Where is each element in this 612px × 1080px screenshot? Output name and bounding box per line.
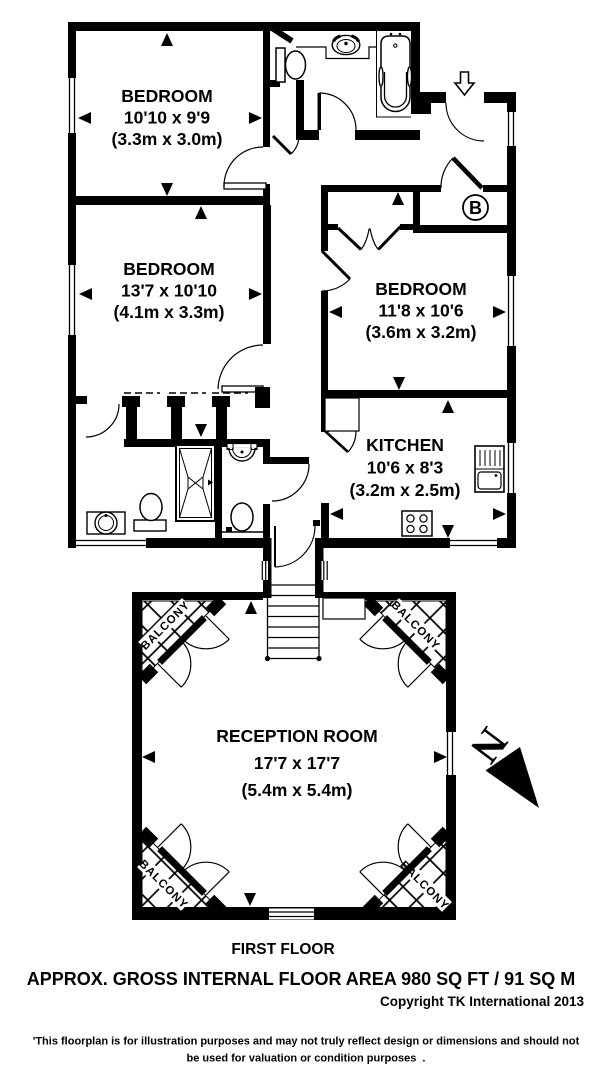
svg-text:17'7 x 17'7: 17'7 x 17'7 (254, 753, 340, 773)
svg-text:'This floorplan is for illustr: 'This floorplan is for illustration purp… (33, 1036, 580, 1048)
svg-text:11'8 x 10'6: 11'8 x 10'6 (378, 301, 463, 321)
svg-text:10'10 x 9'9: 10'10 x 9'9 (124, 108, 210, 128)
svg-text:APPROX. GROSS INTERNAL FLOOR A: APPROX. GROSS INTERNAL FLOOR AREA 980 SQ… (27, 969, 575, 989)
svg-text:FIRST FLOOR: FIRST FLOOR (231, 941, 334, 958)
svg-text:(3.6m x 3.2m): (3.6m x 3.2m) (366, 322, 477, 342)
svg-text:BEDROOM: BEDROOM (375, 279, 466, 299)
svg-text:RECEPTION ROOM: RECEPTION ROOM (216, 726, 377, 746)
svg-text:be used for valuation or condi: be used for valuation or condition purpo… (187, 1053, 426, 1065)
svg-text:(3.2m x 2.5m): (3.2m x 2.5m) (350, 480, 461, 500)
svg-text:BEDROOM: BEDROOM (123, 259, 214, 279)
svg-text:KITCHEN: KITCHEN (366, 435, 444, 455)
svg-text:Copyright TK International 201: Copyright TK International 2013 (380, 994, 585, 1009)
svg-text:(4.1m x 3.3m): (4.1m x 3.3m) (114, 302, 225, 322)
svg-text:13'7 x 10'10: 13'7 x 10'10 (121, 281, 217, 301)
svg-text:B: B (469, 198, 482, 218)
svg-text:10'6 x 8'3: 10'6 x 8'3 (367, 458, 444, 478)
svg-text:(5.4m x 5.4m): (5.4m x 5.4m) (242, 780, 353, 800)
svg-text:(3.3m x 3.0m): (3.3m x 3.0m) (112, 129, 223, 149)
svg-text:BEDROOM: BEDROOM (121, 86, 212, 106)
